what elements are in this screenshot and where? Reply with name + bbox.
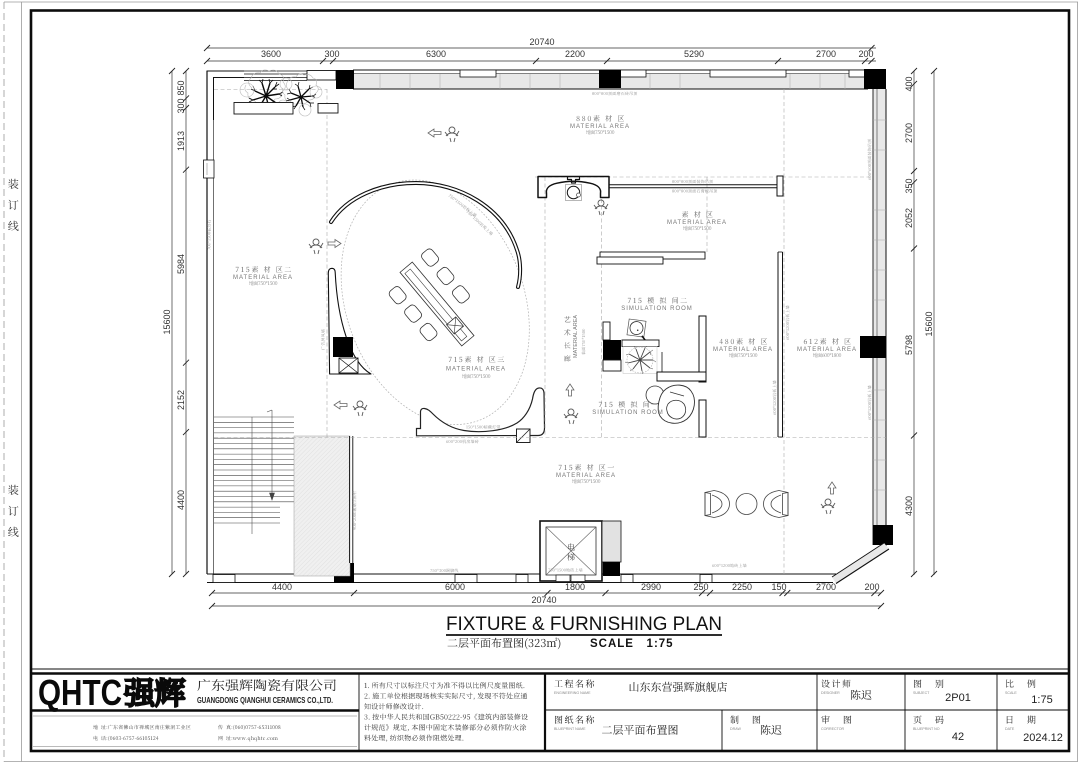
svg-text:MATERIAL AREA: MATERIAL AREA <box>573 315 579 358</box>
svg-text:1:75: 1:75 <box>1031 694 1052 706</box>
svg-text:20740: 20740 <box>531 595 556 605</box>
svg-text:2990: 2990 <box>641 582 661 592</box>
svg-text:15600: 15600 <box>162 309 172 334</box>
svg-text:MATERIAL AREA: MATERIAL AREA <box>556 473 616 479</box>
svg-text:20740: 20740 <box>529 37 554 47</box>
svg-text:2250: 2250 <box>732 582 752 592</box>
svg-text:300: 300 <box>176 98 186 113</box>
svg-text:2152: 2152 <box>176 390 186 410</box>
svg-text:SIMULATION ROOM: SIMULATION ROOM <box>621 306 693 312</box>
svg-text:CORRECTOR: CORRECTOR <box>821 727 844 731</box>
svg-text:FIXTURE & FURNISHING PLAN: FIXTURE & FURNISHING PLAN <box>446 613 722 635</box>
svg-text:DATE: DATE <box>1005 727 1015 731</box>
svg-text:SUBJECT: SUBJECT <box>913 691 930 695</box>
svg-text:250: 250 <box>693 582 708 592</box>
svg-text:SIMULATION ROOM: SIMULATION ROOM <box>592 410 664 416</box>
svg-text:2700: 2700 <box>816 49 836 59</box>
svg-text:2P01: 2P01 <box>945 692 971 704</box>
svg-text:BLUEPRINT NO: BLUEPRINT NO <box>913 727 940 731</box>
svg-text:BLUEPRINT NAME: BLUEPRINT NAME <box>554 727 586 731</box>
svg-text:2200: 2200 <box>565 49 585 59</box>
svg-text:2052: 2052 <box>904 208 914 228</box>
svg-text:5798: 5798 <box>904 335 914 355</box>
svg-text:SCALE: SCALE <box>1005 691 1017 695</box>
svg-text:MATERIAL AREA: MATERIAL AREA <box>667 220 727 226</box>
svg-text:4400: 4400 <box>272 582 292 592</box>
svg-text:2700: 2700 <box>904 123 914 143</box>
svg-text:200: 200 <box>858 49 873 59</box>
svg-text:6000: 6000 <box>445 582 465 592</box>
svg-text:ENGINEERING NAME: ENGINEERING NAME <box>554 691 591 695</box>
svg-text:4300: 4300 <box>904 496 914 516</box>
svg-text:5290: 5290 <box>684 49 704 59</box>
svg-text:1913: 1913 <box>176 131 186 151</box>
svg-text:DESIGNER: DESIGNER <box>821 691 840 695</box>
svg-text:1800: 1800 <box>565 582 585 592</box>
svg-text:MATERIAL AREA: MATERIAL AREA <box>713 347 773 353</box>
svg-text:150: 150 <box>771 582 786 592</box>
svg-text:6300: 6300 <box>426 49 446 59</box>
svg-text:42: 42 <box>952 731 964 743</box>
svg-text:300: 300 <box>324 49 339 59</box>
svg-text:SCALE 1:75: SCALE 1:75 <box>590 638 674 650</box>
svg-text:MATERIAL AREA: MATERIAL AREA <box>446 367 506 373</box>
svg-text:850: 850 <box>176 80 186 95</box>
svg-text:350: 350 <box>904 178 914 193</box>
svg-text:400: 400 <box>904 76 914 91</box>
svg-text:MATERIAL AREA: MATERIAL AREA <box>570 124 630 130</box>
svg-text:5984: 5984 <box>176 254 186 274</box>
svg-text:MATERIAL AREA: MATERIAL AREA <box>233 275 293 281</box>
svg-text:QHTC: QHTC <box>38 672 122 713</box>
svg-text:DRAW: DRAW <box>730 727 741 731</box>
svg-text:3600: 3600 <box>261 49 281 59</box>
svg-text:2700: 2700 <box>816 582 836 592</box>
svg-text:4400: 4400 <box>176 490 186 510</box>
svg-text:15600: 15600 <box>924 311 934 336</box>
svg-text:2024.12: 2024.12 <box>1023 732 1063 744</box>
svg-text:MATERIAL AREA: MATERIAL AREA <box>797 347 857 353</box>
svg-text:GUANGDONG QIANGHUI CERAMICS CO: GUANGDONG QIANGHUI CERAMICS CO.,LTD. <box>197 695 333 705</box>
